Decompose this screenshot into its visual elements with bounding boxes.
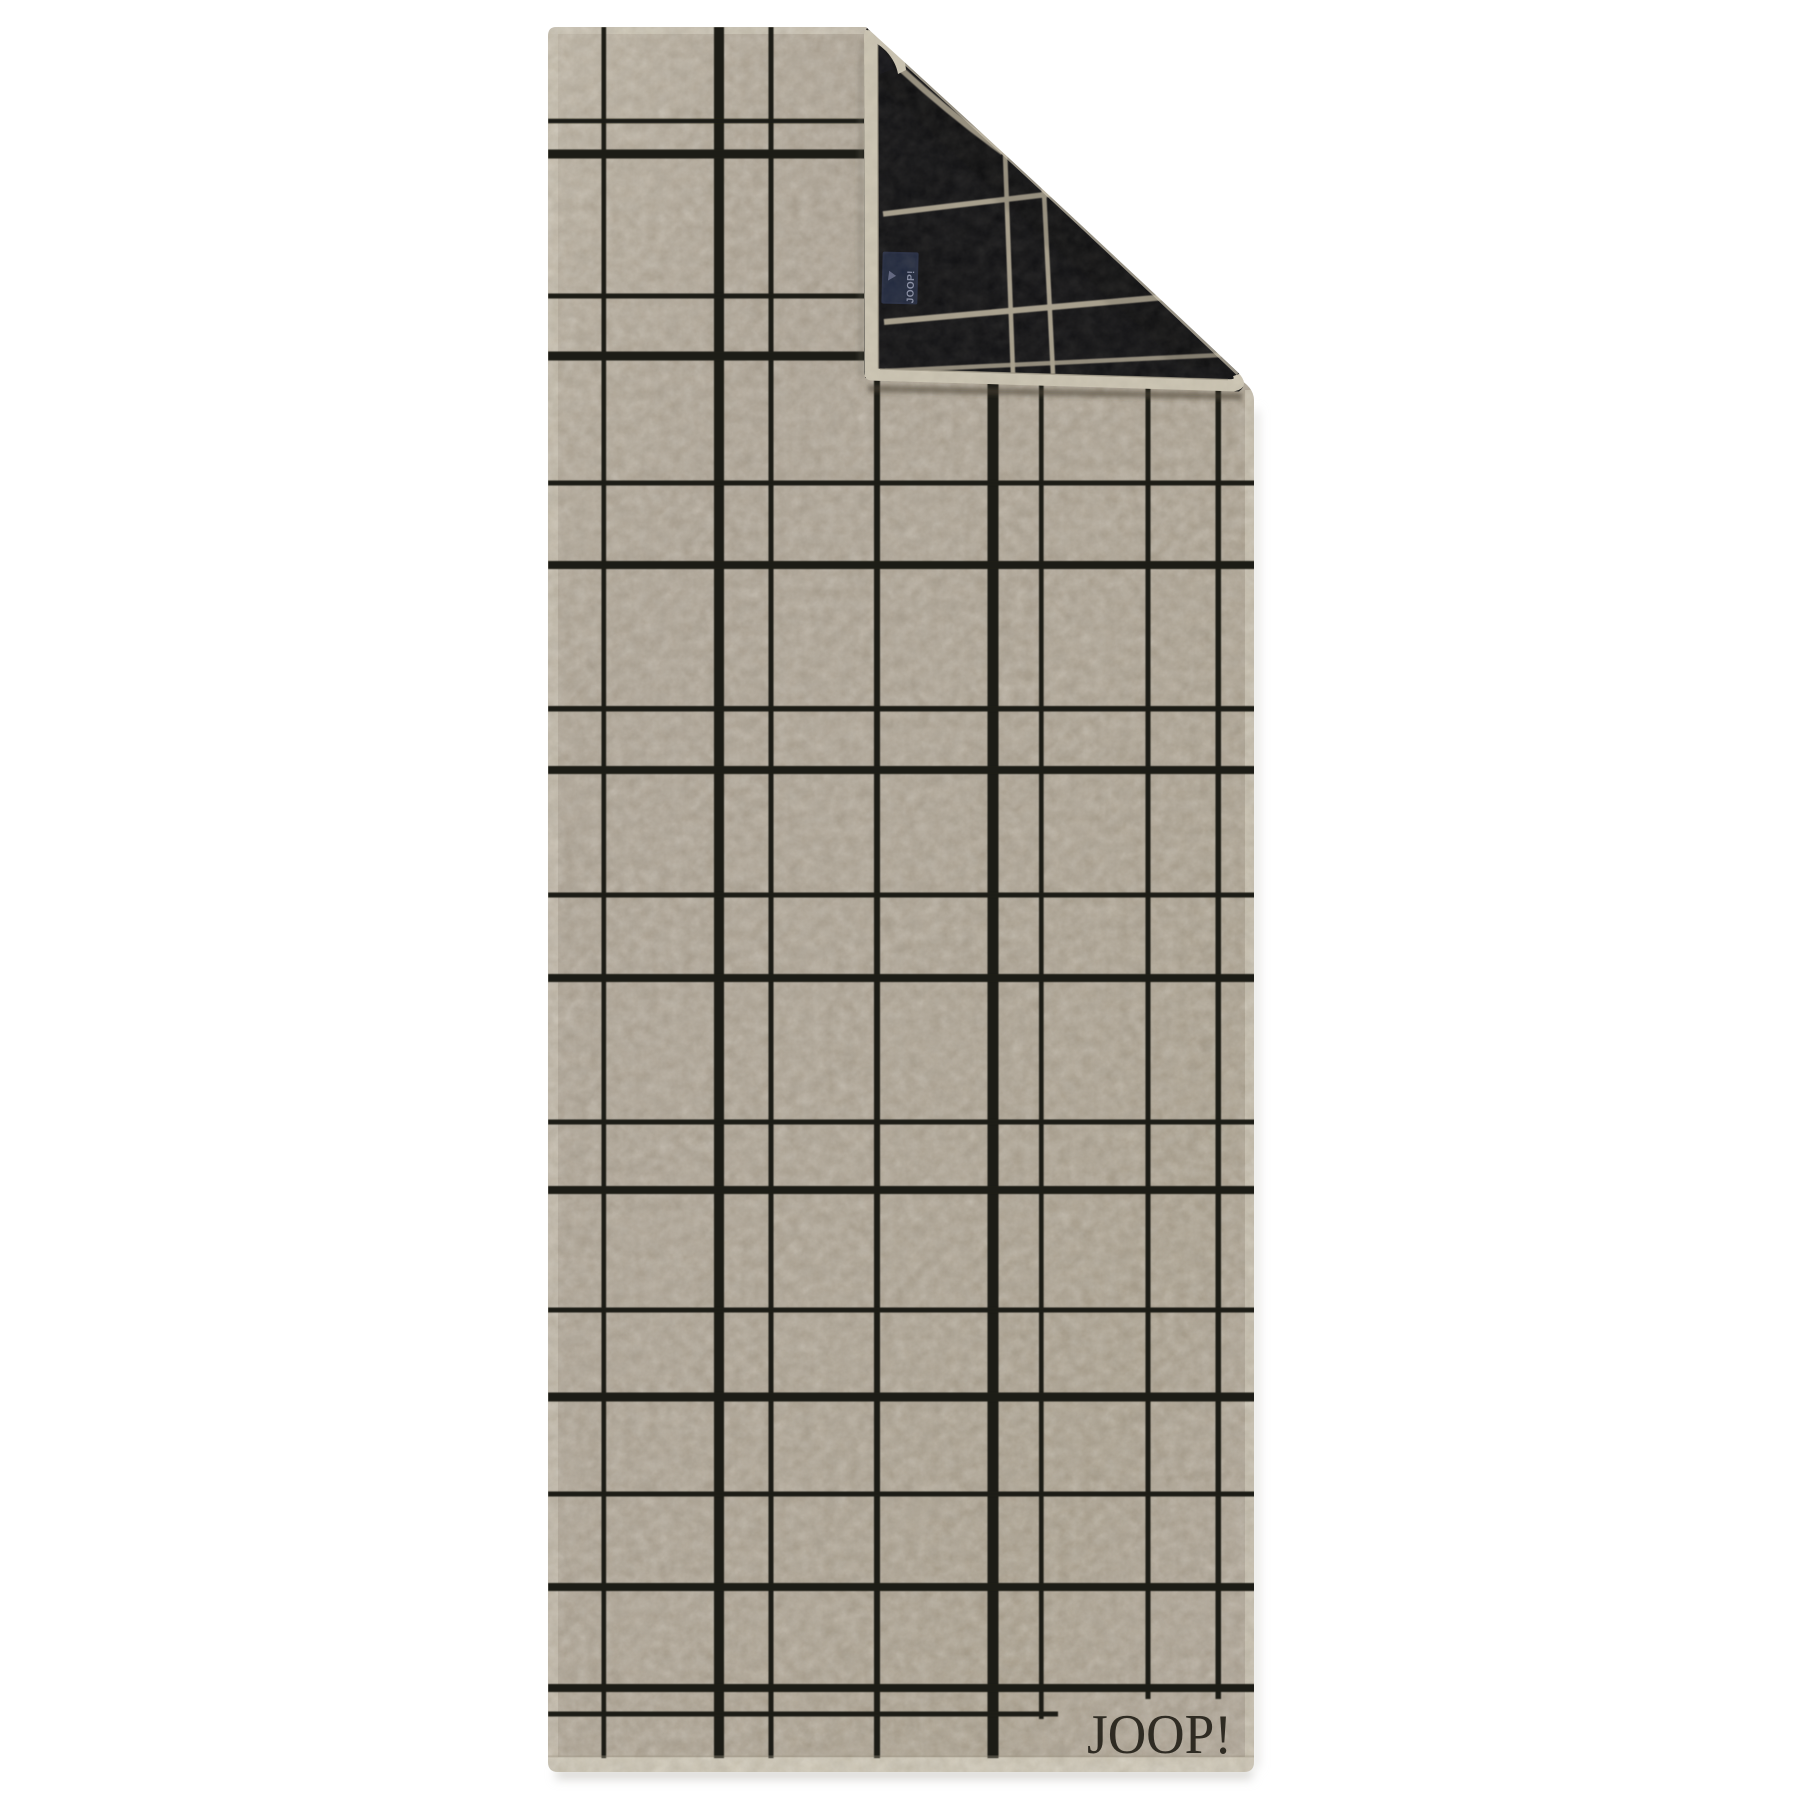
svg-text:JOOP!: JOOP! (1087, 1704, 1232, 1766)
